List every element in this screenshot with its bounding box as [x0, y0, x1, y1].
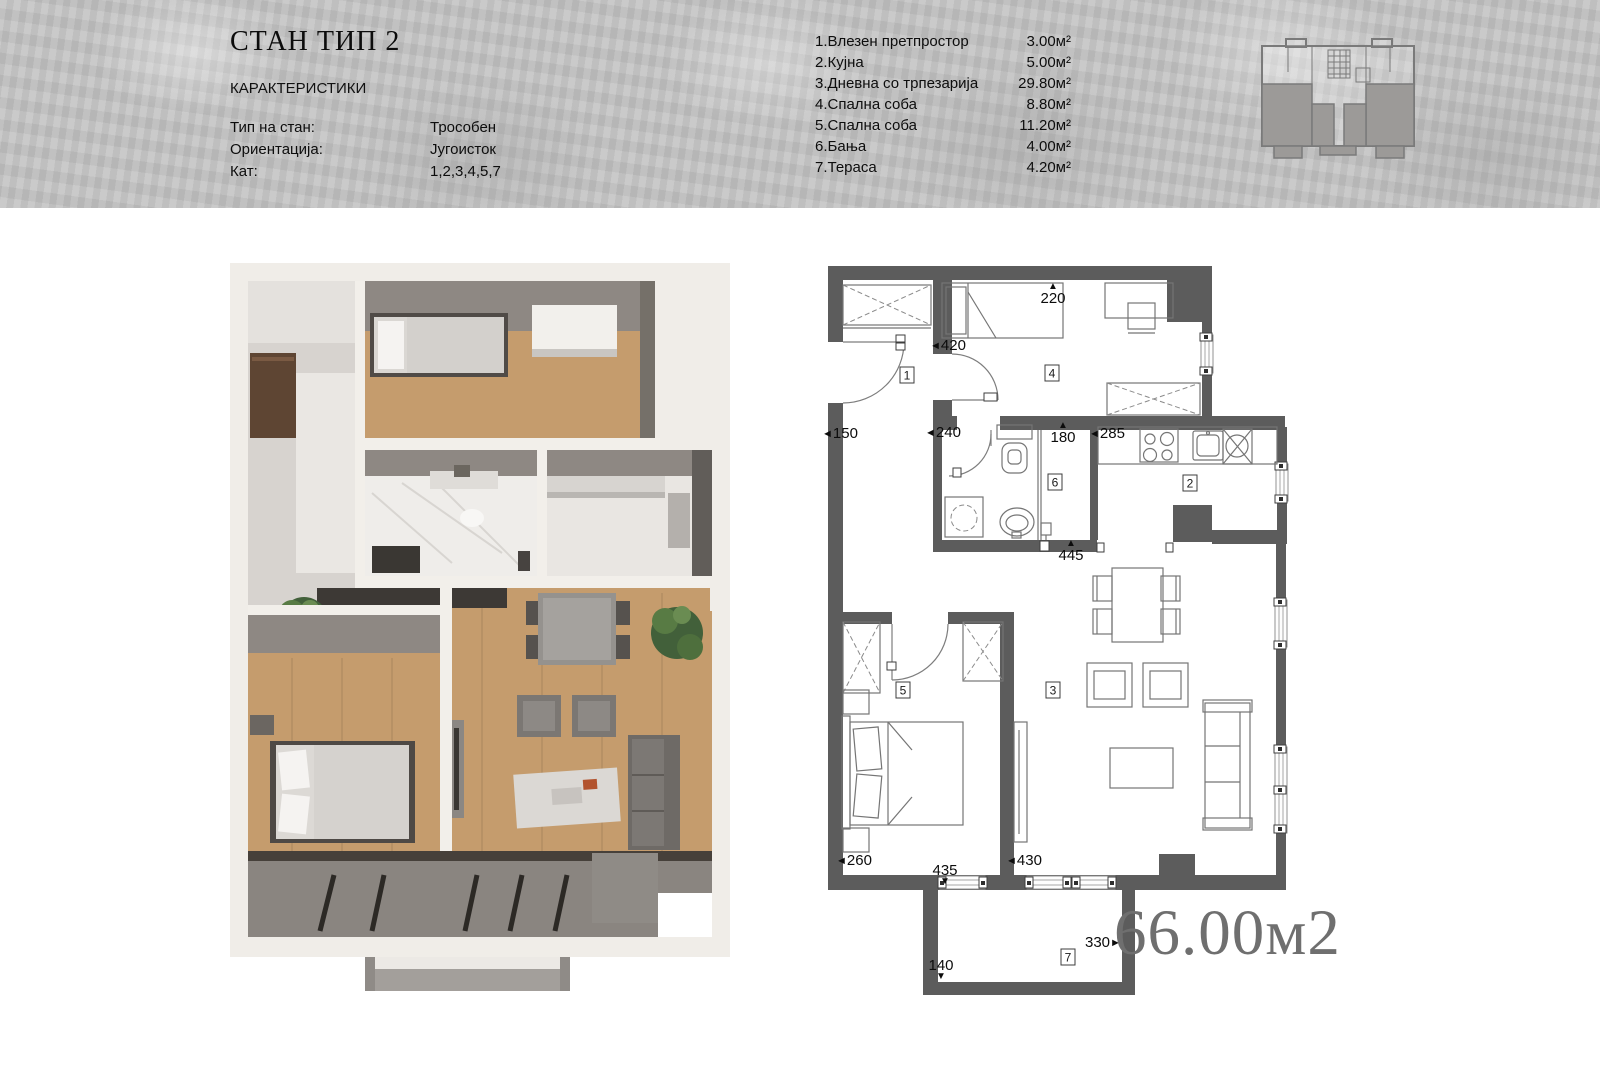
- spec-label: Кат:: [230, 163, 430, 180]
- room-list-row: 1.Влезен претпростор 3.00м²: [815, 31, 1071, 52]
- spec-row: Ориентација: Југоисток: [230, 138, 520, 160]
- spec-table: Тип на стан: Трособен Ориентација: Југои…: [230, 116, 520, 182]
- room-list-area: 4.20м²: [1026, 159, 1071, 176]
- plan-entry-wardrobe: [843, 285, 931, 328]
- room-list-name: 7.Тераса: [815, 159, 877, 176]
- spec-value: Трособен: [430, 119, 496, 136]
- section-label: КАРАКТЕРИСТИКИ: [230, 80, 366, 97]
- brochure-page: СТАН ТИП 2 КАРАКТЕРИСТИКИ Тип на стан: Т…: [0, 0, 1600, 1067]
- room-list-name: 4.Спална соба: [815, 96, 917, 113]
- room-list-row: 2.Кујна 5.00м²: [815, 52, 1071, 73]
- render-bedroom-bottom: [248, 588, 452, 861]
- spec-label: Тип на стан:: [230, 119, 430, 136]
- plan-wardrobe-bedroom4: [1107, 383, 1200, 415]
- plan-sofa: [1203, 700, 1252, 830]
- plan-toilet: [997, 425, 1032, 473]
- room-list-name: 1.Влезен претпростор: [815, 33, 969, 50]
- plan-desk: [1105, 283, 1173, 333]
- render-balcony: [365, 957, 570, 991]
- room-list-area: 4.00м²: [1026, 138, 1071, 155]
- plan-wardrobes-bedroom5: [843, 622, 1003, 693]
- render-bedroom-top: [365, 281, 655, 438]
- render-entry-hall: [248, 281, 355, 611]
- plan-coffee-table: [1110, 748, 1173, 788]
- plan-doors: [843, 335, 1051, 680]
- room-list-row: 6.Бања 4.00м²: [815, 136, 1071, 157]
- room-list-area: 29.80м²: [1018, 75, 1071, 92]
- room-list-area: 3.00м²: [1026, 33, 1071, 50]
- spec-label: Ориентација:: [230, 141, 430, 158]
- room-list-name: 3.Дневна со трпезарија: [815, 75, 978, 92]
- plan-bathroom-sink: [1000, 508, 1034, 538]
- plan-dining-set: [1093, 568, 1180, 642]
- render-south-wall: [248, 851, 712, 937]
- floorplan-3d-render: [222, 253, 737, 993]
- room-list-row: 3.Дневна со трпезарија 29.80м²: [815, 73, 1071, 94]
- room-list-name: 6.Бања: [815, 138, 866, 155]
- room-list-row: 4.Спална соба 8.80м²: [815, 94, 1071, 115]
- spec-value: Југоисток: [430, 141, 496, 158]
- room-list-name: 5.Спална соба: [815, 117, 917, 134]
- plan-tv-unit: [1014, 722, 1027, 842]
- room-list-area: 8.80м²: [1026, 96, 1071, 113]
- floorplan-2d-drawing: [810, 260, 1290, 995]
- plan-armchairs: [1087, 663, 1188, 707]
- plan-kitchen-counter: [1098, 427, 1277, 464]
- render-kitchen: [547, 450, 712, 576]
- room-list-row: 5.Спална соба 11.20м²: [815, 115, 1071, 136]
- spec-row: Кат: 1,2,3,4,5,7: [230, 160, 520, 182]
- plan-bed-double: [842, 690, 963, 852]
- page-title: СТАН ТИП 2: [230, 26, 400, 58]
- spec-value: 1,2,3,4,5,7: [430, 163, 501, 180]
- plan-washing-machine: [945, 497, 983, 537]
- room-list-area: 11.20м²: [1019, 117, 1071, 134]
- room-list-row: 7.Тераса 4.20м²: [815, 157, 1071, 178]
- header-band: СТАН ТИП 2 КАРАКТЕРИСТИКИ Тип на стан: Т…: [0, 0, 1600, 208]
- room-area-list: 1.Влезен претпростор 3.00м² 2.Кујна 5.00…: [815, 31, 1071, 178]
- room-list-area: 5.00м²: [1026, 54, 1071, 71]
- building-keyplan-icon: [1248, 32, 1428, 177]
- render-bathroom: [365, 450, 537, 576]
- plan-bed-single: [942, 283, 1063, 338]
- spec-row: Тип на стан: Трособен: [230, 116, 520, 138]
- room-list-name: 2.Кујна: [815, 54, 864, 71]
